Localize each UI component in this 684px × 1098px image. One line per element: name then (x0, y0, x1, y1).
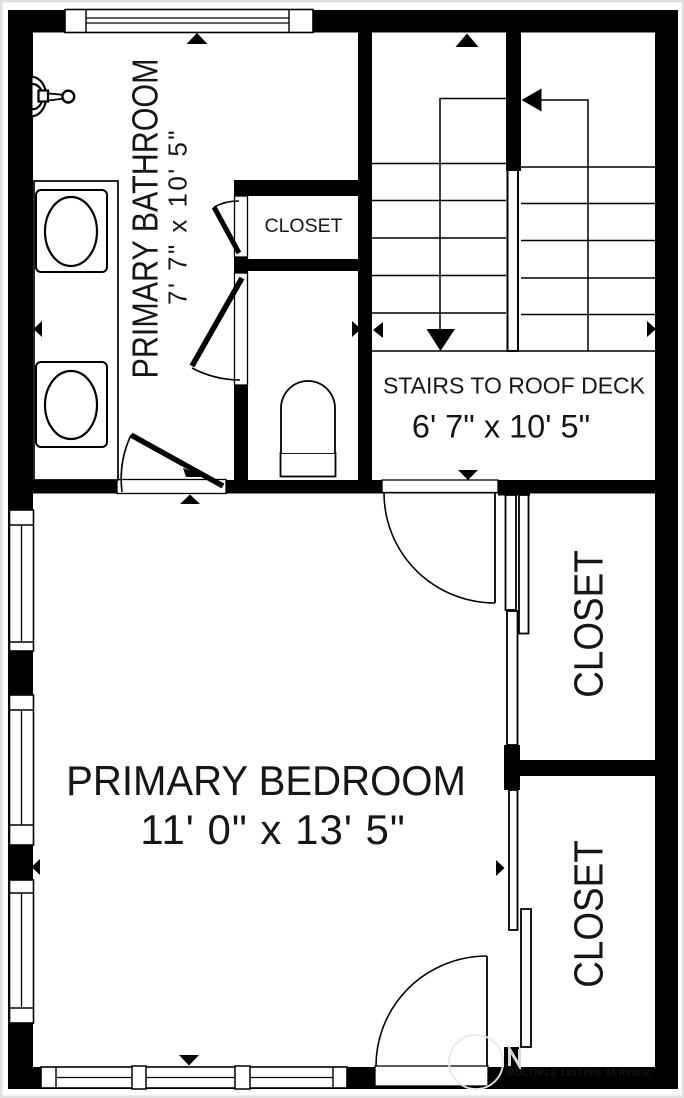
svg-text:6' 7" x 10' 5": 6' 7" x 10' 5" (412, 409, 590, 445)
svg-text:STAIRS TO ROOF DECK: STAIRS TO ROOF DECK (383, 373, 646, 399)
svg-text:PRIMARY BATHROOM: PRIMARY BATHROOM (126, 59, 166, 379)
svg-text:CLOSET: CLOSET (264, 215, 342, 237)
svg-text:MULTIPLE LISTING SERVICE.: MULTIPLE LISTING SERVICE. (507, 1068, 653, 1078)
svg-text:PRIMARY BEDROOM: PRIMARY BEDROOM (66, 757, 466, 804)
svg-text:CLOSET: CLOSET (567, 840, 612, 988)
svg-text:CLOSET: CLOSET (567, 550, 612, 698)
svg-text:7' 7" x 10' 5": 7' 7" x 10' 5" (163, 128, 193, 305)
svg-text:11' 0" x 13' 5": 11' 0" x 13' 5" (140, 806, 406, 853)
